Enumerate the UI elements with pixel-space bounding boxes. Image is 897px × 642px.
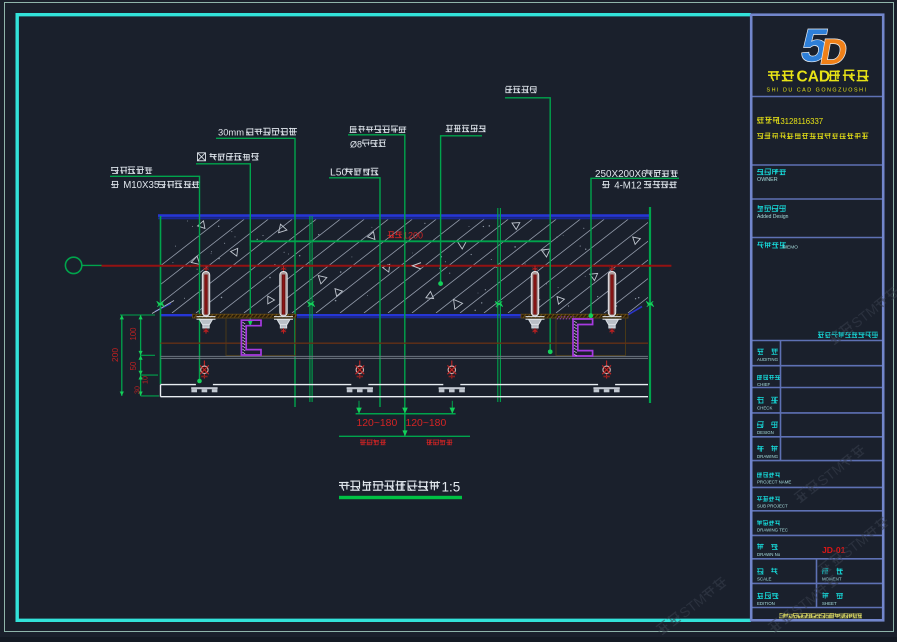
svg-text:200: 200 [110,348,120,362]
svg-text:50: 50 [129,361,138,370]
svg-text:DRAWN No: DRAWN No [757,552,781,557]
svg-text:M10X35: M10X35 [123,180,159,191]
svg-text:10: 10 [141,376,150,384]
svg-text:30mm: 30mm [218,127,244,138]
svg-text:OWNER: OWNER [757,177,778,183]
svg-text:13128116337: 13128116337 [776,117,823,126]
svg-text:AUDITING: AUDITING [757,357,779,362]
svg-text:SHI DU CAD GONGZUOSHI: SHI DU CAD GONGZUOSHI [767,88,868,94]
svg-text:250X200X6: 250X200X6 [595,169,647,180]
svg-text:120~180: 120~180 [406,418,447,429]
svg-text:30: 30 [133,386,142,394]
svg-text:L50: L50 [330,168,347,179]
svg-text:CAD: CAD [797,69,831,86]
svg-text:1:5: 1:5 [442,480,461,495]
svg-text:Added Design: Added Design [757,214,789,220]
svg-text:DESIGN: DESIGN [757,430,774,435]
svg-text:120~180: 120~180 [357,418,398,429]
svg-text:SHEET: SHEET [822,601,837,606]
svg-text:SUB PROJECT: SUB PROJECT [757,504,788,509]
svg-text:PROJECT NAME: PROJECT NAME [757,480,791,485]
svg-text:DRAWING TEC: DRAWING TEC [757,528,788,533]
svg-text:1200: 1200 [403,231,423,241]
svg-text:DRAWING: DRAWING [757,454,779,459]
svg-text:100: 100 [129,327,138,341]
svg-text:MEMO: MEMO [783,245,798,251]
svg-text:Ø8: Ø8 [350,139,362,149]
svg-text:SCALE: SCALE [757,577,771,582]
svg-text:CHIEF: CHIEF [757,382,770,387]
svg-text:CHECK: CHECK [757,406,772,411]
svg-text:4-M12: 4-M12 [614,180,641,191]
svg-text:EDITION: EDITION [757,601,775,606]
